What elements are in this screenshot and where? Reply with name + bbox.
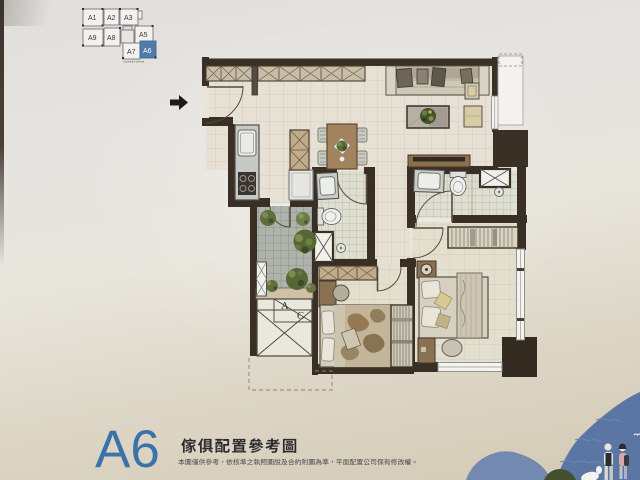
svg-text:A7: A7 bbox=[127, 49, 136, 56]
svg-text:C: C bbox=[297, 311, 304, 322]
svg-text:A6: A6 bbox=[143, 48, 152, 55]
svg-text:A5: A5 bbox=[139, 32, 148, 39]
svg-text:A3: A3 bbox=[124, 15, 133, 22]
svg-text:A1: A1 bbox=[88, 15, 97, 22]
svg-text:A8: A8 bbox=[107, 35, 116, 42]
svg-text:A2: A2 bbox=[107, 15, 116, 22]
svg-text:A9: A9 bbox=[88, 35, 97, 42]
svg-text:A: A bbox=[281, 301, 289, 312]
